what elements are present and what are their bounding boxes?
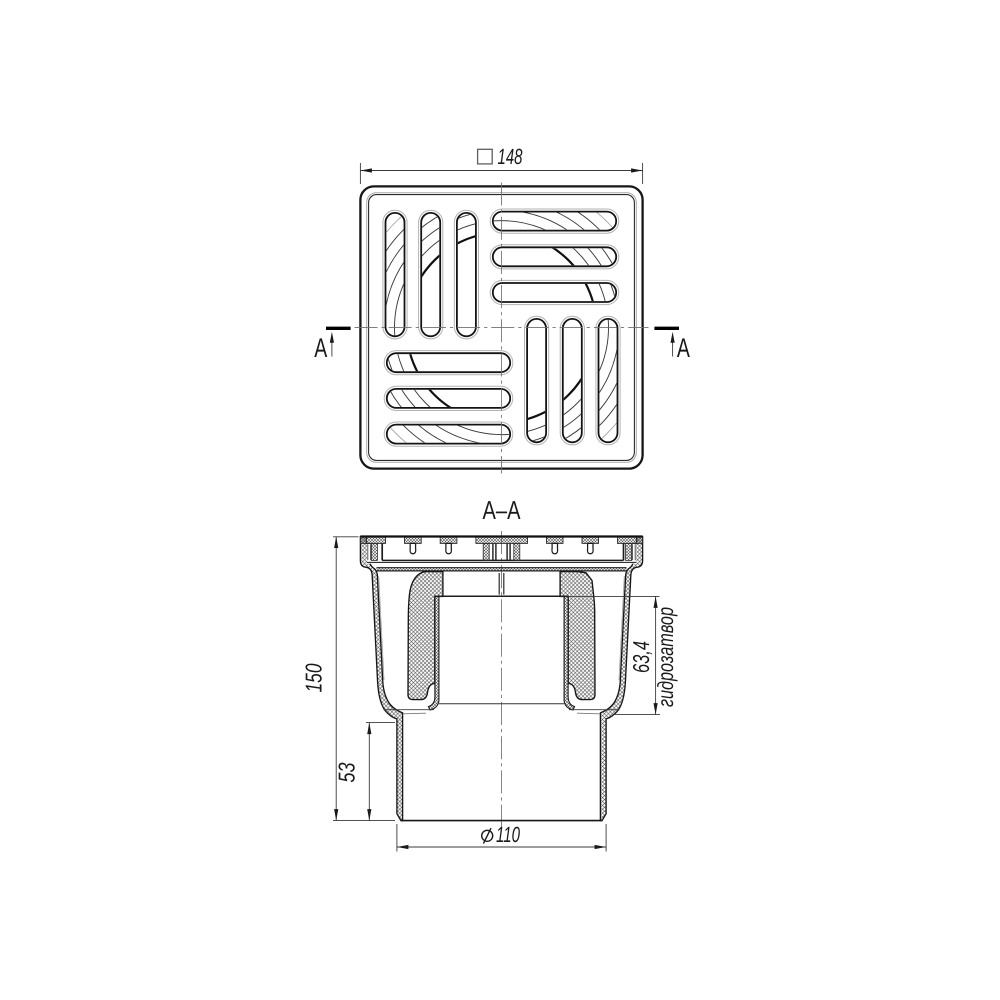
svg-text:A–A: A–A: [483, 495, 521, 525]
svg-text:53: 53: [334, 762, 360, 782]
svg-text:150: 150: [301, 663, 327, 692]
svg-text:110: 110: [496, 822, 521, 847]
svg-text:гидрозатвор: гидрозатвор: [653, 607, 678, 707]
svg-text:A: A: [314, 333, 327, 363]
svg-text:148: 148: [498, 144, 524, 169]
svg-text:63,4: 63,4: [628, 641, 654, 673]
svg-text:A: A: [677, 333, 690, 363]
